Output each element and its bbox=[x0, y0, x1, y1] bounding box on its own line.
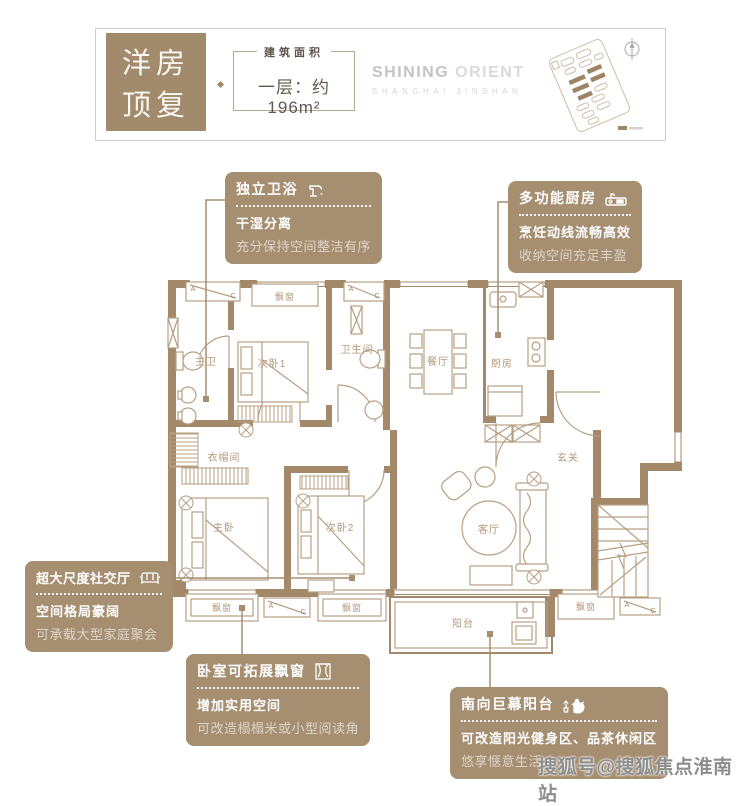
brand: SHINING ORIENT SHANGHAI JINSHAN bbox=[372, 64, 525, 96]
site-plan-outline bbox=[548, 38, 631, 133]
stairs bbox=[598, 505, 648, 597]
callout-social-hall-title: 超大尺度社交厅 bbox=[36, 568, 131, 587]
bay-window-label-bm: 飘窗 bbox=[342, 602, 362, 613]
callout-title-row: 南向巨幕阳台 bbox=[461, 694, 657, 714]
room-label-bedroom2: 次卧2 bbox=[326, 521, 355, 534]
sofa-icon bbox=[138, 569, 162, 586]
site-plan-legend bbox=[618, 126, 643, 130]
room-label-cloakroom: 衣帽间 bbox=[208, 451, 241, 464]
area-box: 建筑面积 一层：约196m² bbox=[233, 51, 355, 111]
room-label-bathroom: 卫生间 bbox=[341, 343, 374, 356]
callout-social-hall-line2: 可承载大型家庭聚会 bbox=[36, 624, 162, 643]
callout-bay-window-line2: 可改造榻榻米或小型阅读角 bbox=[197, 718, 359, 737]
unit-type-line1: 洋房 bbox=[106, 43, 206, 85]
callout-divider bbox=[519, 214, 631, 216]
callout-kitchen-line2: 收纳空间充足丰盈 bbox=[519, 245, 631, 264]
callout-bay-window: 卧室可拓展飘窗 增加实用空间 可改造榻榻米或小型阅读角 bbox=[186, 654, 370, 746]
brand-name: SHINING ORIENT bbox=[372, 64, 525, 82]
callout-divider bbox=[236, 205, 371, 207]
unit-type-badge: 洋房 顶复 bbox=[106, 33, 206, 131]
callout-bathroom-line1: 干湿分离 bbox=[236, 213, 371, 232]
bed-master bbox=[179, 496, 268, 582]
marker-letter-c: C bbox=[230, 293, 235, 300]
callout-social-hall-line1: 空间格局豪阔 bbox=[36, 601, 162, 620]
marker-letter-a: A bbox=[269, 603, 274, 610]
marker-letter-a: A bbox=[349, 286, 354, 293]
callout-kitchen-title: 多功能厨房 bbox=[519, 188, 597, 208]
wardrobes bbox=[170, 406, 348, 489]
callout-title-row: 多功能厨房 bbox=[519, 188, 631, 208]
callout-kitchen: 多功能厨房 烹饪动线流畅高效 收纳空间充足丰盈 bbox=[508, 181, 642, 273]
marker-letter-c: C bbox=[650, 608, 655, 615]
brand-subtitle: SHANGHAI JINSHAN bbox=[372, 87, 525, 96]
bay-window-icon bbox=[313, 662, 333, 681]
marker-letter-a: A bbox=[625, 602, 630, 609]
room-label-bedroom1: 次卧1 bbox=[258, 357, 287, 370]
callout-bay-window-title: 卧室可拓展飘窗 bbox=[197, 661, 306, 681]
compass-icon bbox=[625, 38, 639, 60]
callout-divider bbox=[36, 593, 162, 595]
room-label-balcony: 阳台 bbox=[452, 617, 474, 630]
callout-social-hall: 超大尺度社交厅 空间格局豪阔 可承载大型家庭聚会 bbox=[25, 561, 173, 652]
brand-name-light: ORIENT bbox=[455, 64, 524, 81]
brand-name-strong: SHINING bbox=[372, 64, 449, 81]
callout-divider bbox=[461, 720, 657, 722]
bay-window-label-bl: 飘窗 bbox=[212, 602, 232, 613]
area-value: 一层：约196m² bbox=[234, 73, 354, 118]
room-label-kitchen: 厨房 bbox=[491, 357, 513, 370]
marker-letter-c: C bbox=[300, 609, 305, 616]
callout-bay-window-line1: 增加实用空间 bbox=[197, 695, 359, 714]
kitchen-fixtures bbox=[488, 292, 545, 416]
site-plan-map bbox=[528, 33, 646, 137]
callout-balcony-title: 南向巨幕阳台 bbox=[461, 694, 554, 714]
section-marker: A C bbox=[620, 598, 660, 615]
unit-type-line2: 顶复 bbox=[106, 85, 206, 127]
callout-bathroom: 独立卫浴 干湿分离 充分保持空间整洁有序 bbox=[225, 172, 382, 264]
faucet-icon bbox=[305, 180, 325, 198]
callout-title-row: 超大尺度社交厅 bbox=[36, 568, 162, 587]
kitchen-sink-icon bbox=[604, 189, 628, 207]
area-caption: 建筑面积 bbox=[257, 44, 331, 60]
page: 洋房 顶复 建筑面积 一层：约196m² SHINING ORIENT SHAN… bbox=[0, 0, 742, 787]
callout-balcony-line1: 可改造阳光健身区、品茶休闲区 bbox=[461, 728, 657, 747]
marker-letter-a: A bbox=[191, 286, 196, 293]
bay-window-label-br: 飘窗 bbox=[576, 601, 596, 612]
callout-bathroom-line2: 充分保持空间整洁有序 bbox=[236, 236, 371, 255]
ceiling-symbol bbox=[239, 423, 253, 437]
room-label-living: 客厅 bbox=[478, 523, 500, 536]
section-marker: A C bbox=[344, 282, 384, 301]
marker-letter-c: C bbox=[374, 293, 379, 300]
bay-window-label-top: 飘窗 bbox=[275, 291, 295, 302]
room-label-master-bedroom: 主卧 bbox=[213, 521, 235, 534]
callout-kitchen-line1: 烹饪动线流畅高效 bbox=[519, 222, 631, 241]
callout-divider bbox=[197, 687, 359, 689]
tea-set-icon bbox=[561, 695, 587, 714]
section-marker: A C bbox=[186, 282, 240, 301]
callout-bathroom-title: 独立卫浴 bbox=[236, 179, 298, 199]
callout-title-row: 独立卫浴 bbox=[236, 179, 371, 199]
room-label-foyer: 玄关 bbox=[557, 451, 579, 464]
room-label-dining: 餐厅 bbox=[427, 355, 449, 368]
watermark: 搜狐号@搜狐焦点淮南站 bbox=[538, 752, 742, 806]
callout-title-row: 卧室可拓展飘窗 bbox=[197, 661, 359, 681]
section-marker: A C bbox=[264, 598, 310, 617]
